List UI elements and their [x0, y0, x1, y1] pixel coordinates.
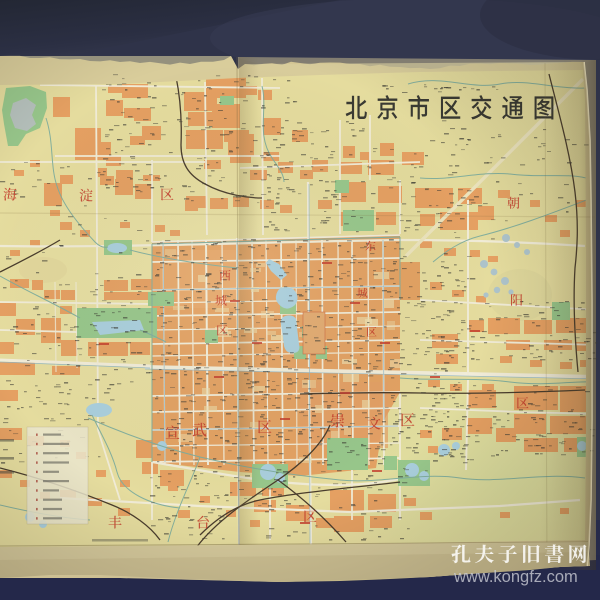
svg-text:www.kongfz.com: www.kongfz.com: [453, 568, 578, 586]
